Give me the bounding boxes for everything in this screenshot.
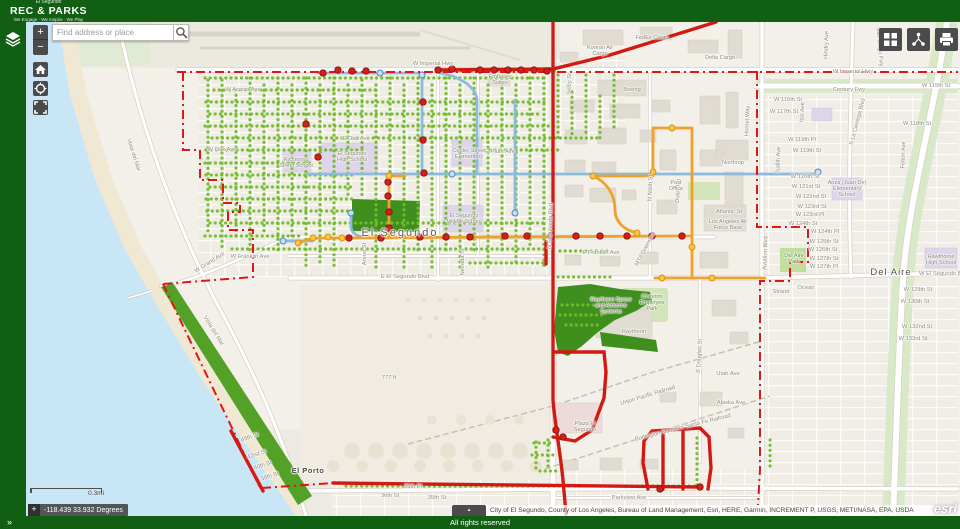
left-sidebar [0, 22, 26, 516]
red-stop-marker[interactable] [649, 233, 655, 239]
map-toolbar [879, 28, 958, 51]
red-stop-marker[interactable] [378, 235, 384, 241]
red-stop-marker[interactable] [502, 233, 508, 239]
scale-bar: 0.3mi [30, 488, 102, 499]
blue-stop-marker[interactable] [377, 70, 383, 76]
orange-stop-marker[interactable] [650, 169, 656, 175]
red-stop-marker[interactable] [349, 68, 355, 74]
red-stop-marker[interactable] [421, 170, 427, 176]
layers-button[interactable] [3, 30, 23, 50]
share-icon [910, 36, 927, 51]
print-button[interactable] [935, 28, 958, 51]
red-stop-marker[interactable] [544, 68, 550, 74]
orange-stop-marker[interactable] [339, 235, 345, 241]
orange-stop-marker[interactable] [709, 275, 715, 281]
extent-icon [34, 101, 47, 114]
esri-logo: esri [934, 501, 957, 516]
red-stop-marker[interactable] [449, 66, 455, 72]
red-stop-marker[interactable] [386, 225, 392, 231]
orange-stop-marker[interactable] [689, 244, 695, 250]
orange-stop-marker[interactable] [634, 230, 640, 236]
orange-stop-marker[interactable] [386, 173, 392, 179]
red-stop-marker[interactable] [491, 67, 497, 73]
crosshair-icon: + [28, 504, 40, 516]
search-input[interactable] [52, 24, 173, 41]
orange-stop-marker[interactable] [669, 125, 675, 131]
red-stop-marker[interactable] [553, 427, 559, 433]
basemap-gallery-button[interactable] [879, 28, 902, 51]
blue-stop-marker[interactable] [512, 210, 518, 216]
red-stop-marker[interactable] [303, 121, 309, 127]
share-button[interactable] [907, 28, 930, 51]
red-stop-marker[interactable] [385, 193, 391, 199]
blue-stop-marker[interactable] [348, 210, 354, 216]
red-stop-marker[interactable] [386, 209, 392, 215]
home-icon [34, 63, 47, 76]
red-stop-marker[interactable] [573, 233, 579, 239]
map-canvas[interactable] [26, 22, 960, 516]
scale-label: 0.3mi [88, 490, 104, 497]
red-stop-marker[interactable] [443, 234, 449, 240]
home-button[interactable] [33, 62, 48, 77]
red-stop-marker[interactable] [548, 233, 554, 239]
red-stop-marker[interactable] [435, 67, 441, 73]
red-stop-marker[interactable] [597, 233, 603, 239]
rec-parks-logo[interactable]: El Segundo REC & PARKS We Engage · We In… [10, 0, 87, 22]
red-stop-marker[interactable] [467, 234, 473, 240]
red-stop-marker[interactable] [420, 99, 426, 105]
red-stop-marker[interactable] [524, 233, 530, 239]
attribution-bar: ▴ City of El Segundo, County of Los Ange… [452, 505, 960, 516]
red-stop-marker[interactable] [346, 235, 352, 241]
red-stop-marker[interactable] [420, 137, 426, 143]
header-bar: El Segundo REC & PARKS We Engage · We In… [0, 0, 960, 22]
logo-title: REC & PARKS [10, 6, 87, 17]
search-box [52, 24, 189, 41]
attribution-text: City of El Segundo, County of Los Angele… [490, 507, 914, 514]
app-window: W Imperial HwyW Imperial HwyCentury FwyS… [0, 0, 960, 529]
basemap-grid-icon [882, 36, 899, 51]
footer-bar: » All rights reserved [0, 516, 960, 529]
zoom-out-button[interactable]: − [33, 40, 48, 55]
zoom-control: + − [33, 25, 48, 55]
copyright-text: All rights reserved [0, 518, 960, 527]
red-stop-marker[interactable] [505, 67, 511, 73]
map-viewport[interactable]: W Imperial HwyW Imperial HwyCentury FwyS… [26, 22, 960, 516]
orange-stop-marker[interactable] [659, 275, 665, 281]
search-button[interactable] [173, 24, 189, 41]
logo-subtitle: El Segundo [36, 0, 62, 5]
orange-stop-marker[interactable] [295, 240, 301, 246]
blue-stop-marker[interactable] [449, 171, 455, 177]
red-stop-marker[interactable] [697, 484, 703, 490]
red-stop-marker[interactable] [657, 486, 663, 492]
locate-icon [34, 82, 47, 95]
red-stop-marker[interactable] [560, 434, 566, 440]
red-stop-marker[interactable] [417, 234, 423, 240]
layers-icon [4, 36, 22, 51]
orange-stop-marker[interactable] [310, 235, 316, 241]
red-stop-marker[interactable] [477, 67, 483, 73]
orange-stop-marker[interactable] [325, 234, 331, 240]
extent-button[interactable] [33, 100, 48, 115]
red-stop-marker[interactable] [320, 70, 326, 76]
blue-stop-marker[interactable] [280, 238, 286, 244]
red-stop-marker[interactable] [385, 179, 391, 185]
red-stop-marker[interactable] [624, 233, 630, 239]
red-stop-marker[interactable] [518, 67, 524, 73]
locate-button[interactable] [33, 81, 48, 96]
zoom-in-button[interactable]: + [33, 25, 48, 40]
orange-stop-marker[interactable] [590, 173, 596, 179]
blue-stop-marker[interactable] [815, 169, 821, 175]
attribution-toggle[interactable]: ▴ [452, 505, 486, 516]
print-icon [938, 36, 955, 51]
red-stop-marker[interactable] [679, 233, 685, 239]
red-stop-marker[interactable] [315, 154, 321, 160]
coordinate-readout: + -118.439 33.932 Degrees [28, 504, 128, 516]
search-icon [175, 27, 188, 42]
coordinate-text: -118.439 33.932 Degrees [44, 507, 123, 514]
blue-stop-marker[interactable] [419, 72, 425, 78]
red-stop-marker[interactable] [363, 68, 369, 74]
logo-tagline: We Engage · We Inspire · We Play [14, 18, 84, 23]
red-stop-marker[interactable] [531, 67, 537, 73]
red-stop-marker[interactable] [335, 67, 341, 73]
